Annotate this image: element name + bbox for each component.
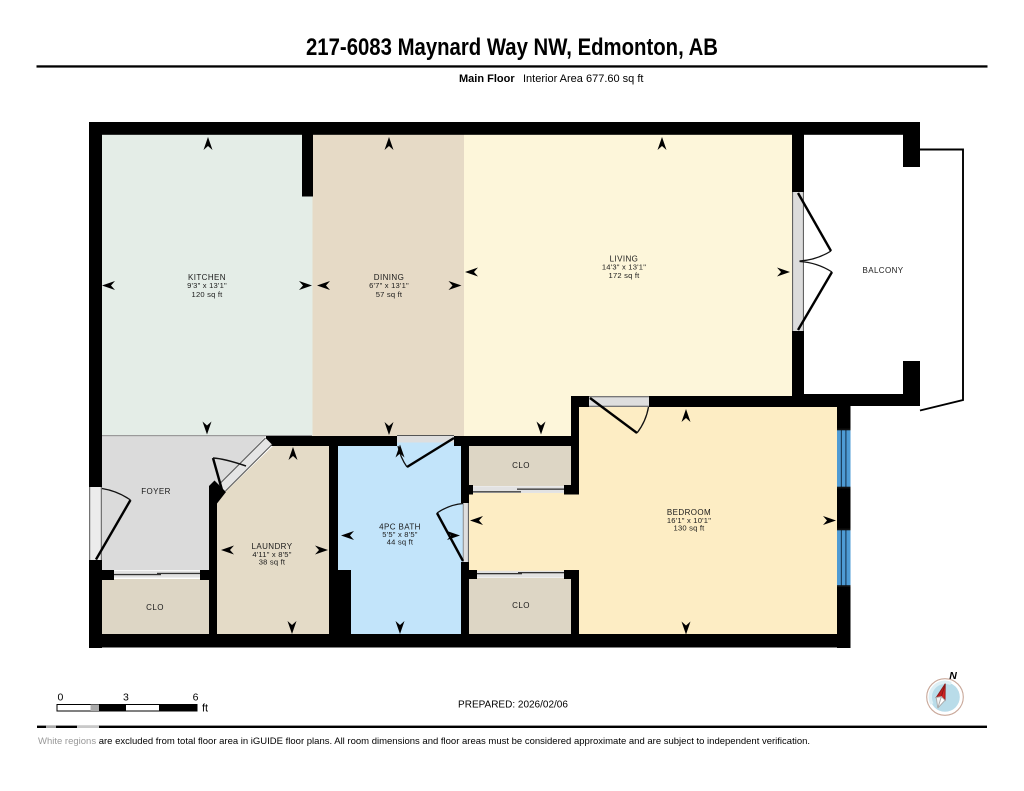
- svg-text:PREPARED: 2026/02/06: PREPARED: 2026/02/06: [458, 700, 568, 711]
- svg-text:BALCONY: BALCONY: [862, 266, 903, 275]
- svg-text:Interior Area 677.60 sq ft: Interior Area 677.60 sq ft: [523, 73, 643, 85]
- svg-text:172 sq ft: 172 sq ft: [609, 271, 641, 280]
- svg-text:9'3" x 13'1": 9'3" x 13'1": [187, 281, 227, 290]
- svg-text:Main Floor: Main Floor: [459, 73, 515, 85]
- svg-text:217-6083 Maynard Way NW, Edmon: 217-6083 Maynard Way NW, Edmonton, AB: [306, 34, 718, 61]
- svg-text:57 sq ft: 57 sq ft: [376, 290, 403, 299]
- svg-text:6: 6: [193, 692, 199, 704]
- svg-text:130 sq ft: 130 sq ft: [674, 524, 706, 533]
- svg-text:6'7" x 13'1": 6'7" x 13'1": [369, 281, 409, 290]
- svg-text:44 sq ft: 44 sq ft: [387, 538, 414, 547]
- svg-text:38 sq ft: 38 sq ft: [259, 558, 286, 567]
- svg-text:FOYER: FOYER: [141, 487, 171, 496]
- svg-text:120 sq ft: 120 sq ft: [192, 290, 224, 299]
- svg-text:0: 0: [57, 692, 63, 704]
- svg-text:CLO: CLO: [146, 603, 164, 612]
- svg-text:N: N: [949, 670, 957, 682]
- svg-text:3: 3: [123, 692, 129, 704]
- svg-text:White regions are excluded fro: White regions are excluded from total fl…: [38, 736, 810, 747]
- svg-text:ft: ft: [202, 702, 208, 714]
- svg-text:CLO: CLO: [512, 601, 530, 610]
- svg-text:CLO: CLO: [512, 461, 530, 470]
